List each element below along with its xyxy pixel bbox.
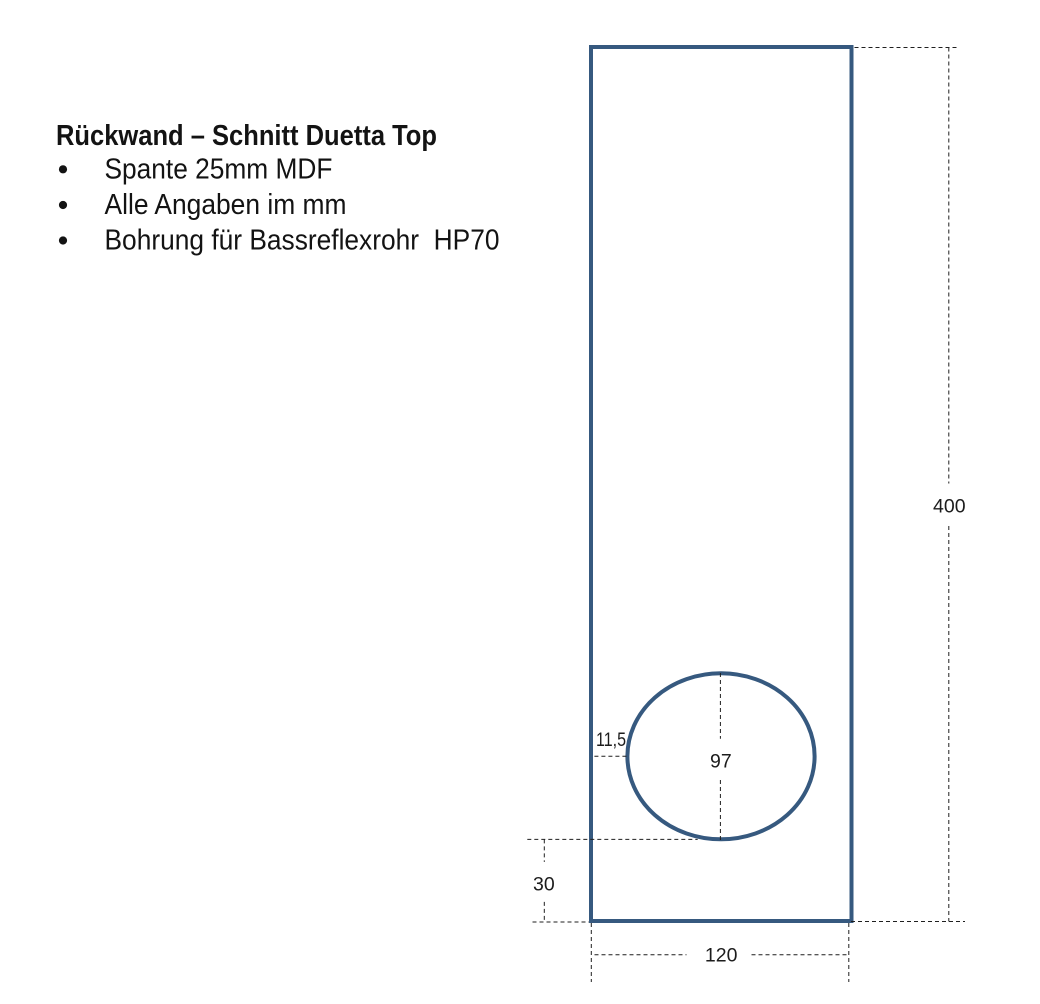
svg-text:Alle Angaben im mm: Alle Angaben im mm bbox=[105, 189, 347, 221]
svg-text:120: 120 bbox=[705, 945, 738, 967]
svg-text:Spante 25mm MDF: Spante 25mm MDF bbox=[105, 153, 333, 185]
svg-text:11,5: 11,5 bbox=[596, 729, 626, 751]
svg-text:Bohrung für Bassreflexrohr HP: Bohrung für Bassreflexrohr HP70 bbox=[105, 225, 500, 257]
svg-text:97: 97 bbox=[710, 751, 732, 773]
svg-text:Rückwand – Schnitt Duetta Top: Rückwand – Schnitt Duetta Top bbox=[56, 120, 437, 152]
svg-text:400: 400 bbox=[933, 496, 966, 518]
svg-text:30: 30 bbox=[533, 874, 555, 896]
